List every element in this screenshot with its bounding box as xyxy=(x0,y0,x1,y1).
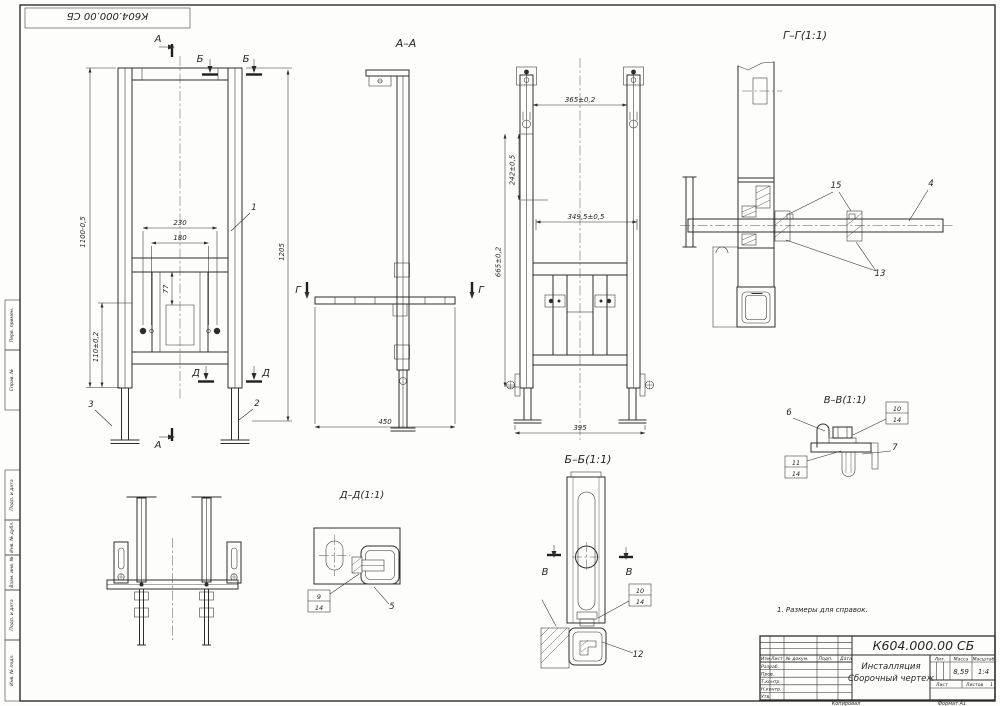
tb-scale-value: 1:4 xyxy=(978,668,989,676)
section-vv-view: В–В(1:1) 6 10 14 7 11 1 xyxy=(785,395,908,478)
pos-2: 2 xyxy=(254,399,259,409)
tb-row-nkontr: Н.контр. xyxy=(761,687,782,693)
margin-label-inv-dubl: Инв. № дубл. xyxy=(9,521,15,552)
pos-4: 4 xyxy=(928,179,933,189)
section-mark-b-right: Б xyxy=(243,54,250,65)
section-gg-linework xyxy=(680,62,955,327)
section-mark-d-left: Д xyxy=(191,368,200,379)
pos-14d: 14 xyxy=(636,598,644,606)
front-view-section-marks: А А Б Б Д Д xyxy=(154,34,271,451)
pos-5: 5 xyxy=(389,602,394,612)
format-label: Формат А1 xyxy=(938,701,966,706)
view-bb: 365±0,2 242±0,5 349,5±0,5 665±0,2 395 Б–… xyxy=(495,58,654,466)
bottom-left-linework xyxy=(107,497,241,645)
tb-mass-label: Масса xyxy=(954,657,969,663)
title-block: Изм. Лист № докум. Подп. Дата Разраб. Пр… xyxy=(760,636,995,700)
tb-row-prov: Пров. xyxy=(761,672,774,678)
section-dd-label: Д–Д(1:1) xyxy=(339,490,385,501)
section-gg-callouts: 15 4 13 xyxy=(786,179,934,279)
section-vv-callouts: 6 10 14 7 11 14 xyxy=(785,402,908,478)
corner-ref-text: К604.000.00 СБ xyxy=(67,10,149,21)
sheet-frame xyxy=(20,5,995,701)
pos-9: 9 xyxy=(317,593,321,601)
tb-row-utv: Утв. xyxy=(761,694,771,700)
tb-product-name: Инсталляция xyxy=(861,662,920,672)
tech-note: 1. Размеры для справок. xyxy=(777,606,868,614)
pos-7: 7 xyxy=(892,443,898,453)
dim-180: 180 xyxy=(173,234,187,242)
pos-15: 15 xyxy=(831,181,842,191)
pos-10: 10 xyxy=(893,405,901,413)
margin-label-perv-primen: Перв. примен. xyxy=(9,308,15,343)
dim-230: 230 xyxy=(173,219,187,227)
view-bb-label: Б–Б(1:1) xyxy=(565,453,612,466)
margin-label-inv-podl: Инв. № подл. xyxy=(9,654,15,686)
section-gg-view: Г–Г(1:1) xyxy=(680,29,955,327)
dim-242: 242±0,5 xyxy=(509,154,517,185)
tb-col-docnum: № докум. xyxy=(785,656,809,662)
dim-1100: 1100-0,5 xyxy=(79,216,87,248)
margin-label-podp-data-1: Подп. и дата xyxy=(9,479,15,510)
dim-349: 349,5±0,5 xyxy=(567,213,605,221)
tb-list-label: Лист xyxy=(935,682,948,688)
tb-col-podp: Подп. xyxy=(819,656,833,662)
front-view-dimensions: 230 180 77 1100-0,5 110±0,2 1205 xyxy=(79,68,292,421)
pos-6: 6 xyxy=(786,408,792,418)
section-mark-d-right: Д xyxy=(261,368,270,379)
section-vv-linework xyxy=(811,424,878,477)
tb-doc-number: К604.000.00 СБ xyxy=(873,638,975,653)
pos-14b: 14 xyxy=(792,470,800,478)
tb-listov-label: Листов xyxy=(965,682,983,688)
tb-listov-value: 1 xyxy=(990,682,993,688)
dim-665: 665±0,2 xyxy=(495,246,503,277)
section-mark-g-right: Г xyxy=(478,285,485,296)
pos-1: 1 xyxy=(251,203,256,213)
section-aa-marks: Г Г xyxy=(295,282,485,299)
dim-365: 365±0,2 xyxy=(565,96,596,104)
section-mark-g-left: Г xyxy=(295,285,302,296)
tb-scale-label: Масштаб xyxy=(973,657,995,663)
dim-395: 395 xyxy=(573,424,587,432)
section-mark-v-left: В xyxy=(542,567,549,578)
detail-bb-marks: В В xyxy=(542,545,633,578)
section-aa-view: А–А xyxy=(295,37,485,431)
bottom-left-view xyxy=(107,497,241,645)
section-mark-b-left: Б xyxy=(197,54,204,65)
section-mark-v-right: В xyxy=(626,567,633,578)
tb-row-razrab: Разраб. xyxy=(761,664,779,670)
pos-10b: 10 xyxy=(636,587,644,595)
front-view-linework xyxy=(111,56,249,444)
tb-col-data: Дата xyxy=(839,656,852,662)
section-dd-view: Д–Д(1:1) 9 14 5 xyxy=(308,490,400,612)
pos-11: 11 xyxy=(792,459,800,467)
pos-12: 12 xyxy=(633,650,644,660)
section-aa-linework xyxy=(315,70,455,431)
section-vv-label: В–В(1:1) xyxy=(824,395,867,406)
tb-col-list: Лист xyxy=(770,656,783,662)
pos-13: 13 xyxy=(875,269,886,279)
dim-450: 450 xyxy=(378,418,392,426)
pos-14a: 14 xyxy=(893,416,901,424)
front-view: 230 180 77 1100-0,5 110±0,2 1205 А А xyxy=(79,34,292,451)
tb-row-tkontr: Т.контр. xyxy=(761,679,781,685)
section-gg-label: Г–Г(1:1) xyxy=(783,29,827,42)
detail-bb-linework xyxy=(541,472,606,668)
view-bb-dimensions: 365±0,2 242±0,5 349,5±0,5 665±0,2 395 xyxy=(495,96,646,433)
section-aa-dimension: 450 xyxy=(315,307,455,427)
pos-14c: 14 xyxy=(315,604,323,612)
tb-doc-type: Сборочный чертеж xyxy=(848,674,934,684)
margin-label-podp-data-2: Подп. и дата xyxy=(9,599,15,630)
dim-77: 77 xyxy=(162,284,170,293)
corner-stamp: К604.000.00 СБ xyxy=(25,8,190,28)
kopiroval-label: Копировал xyxy=(832,701,861,706)
section-mark-a-top: А xyxy=(154,34,162,45)
section-aa-label: А–А xyxy=(395,37,417,50)
tb-mass-value: 8,59 xyxy=(953,668,969,676)
margin-label-sprav-no: Справ. № xyxy=(9,369,15,392)
margin-label-vzam-inv: Взам. инв. № xyxy=(9,556,15,587)
tb-lit-label: Лит. xyxy=(934,657,946,663)
dim-1205: 1205 xyxy=(278,243,286,261)
section-mark-a-bottom: А xyxy=(154,440,162,451)
detail-bb-view: В В 10 14 12 xyxy=(541,472,651,668)
pos-3: 3 xyxy=(88,400,93,410)
view-bb-linework xyxy=(507,58,654,440)
drawing-sheet: К604.000.00 СБ Перв. примен. Справ. № По… xyxy=(0,0,1000,706)
margin-stamps: Перв. примен. Справ. № Подп. и дата Инв.… xyxy=(5,300,20,701)
dim-110: 110±0,2 xyxy=(92,331,100,362)
